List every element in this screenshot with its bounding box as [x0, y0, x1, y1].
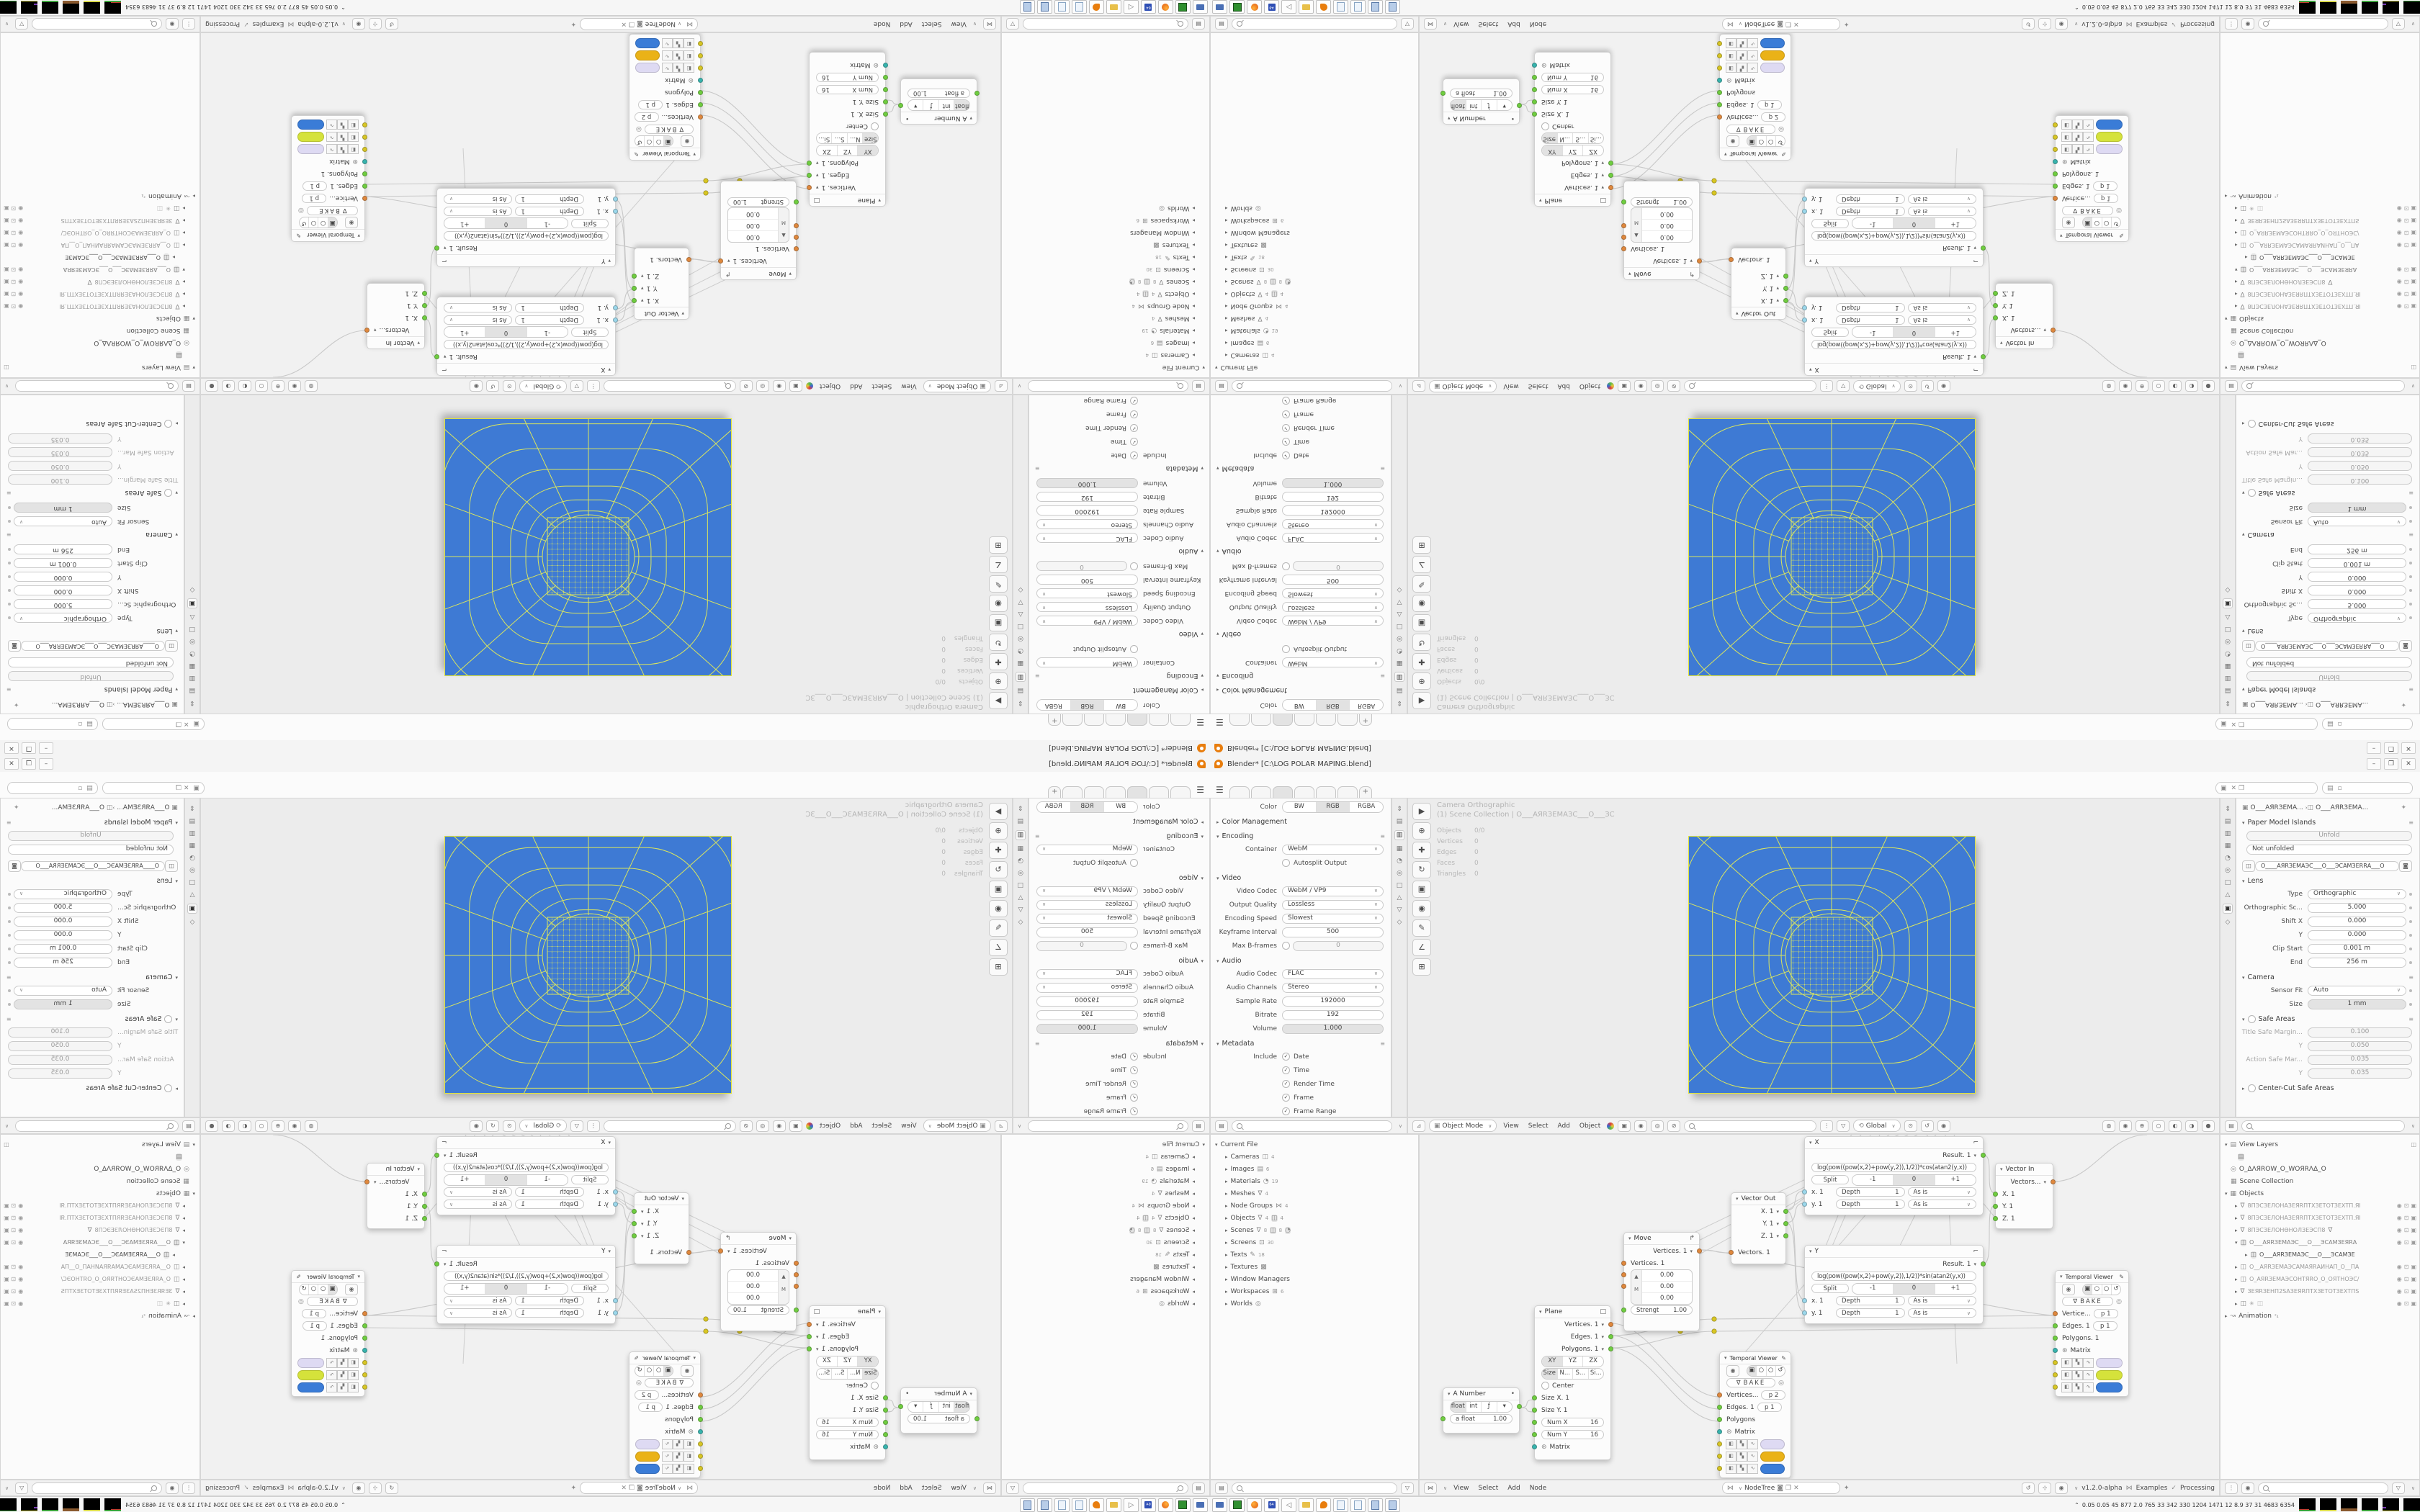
vertices-out-socket[interactable]: [1697, 1248, 1702, 1254]
audio-channels-dropdown[interactable]: Stereo∨: [1036, 520, 1138, 530]
bw-button[interactable]: BW: [1103, 701, 1137, 711]
camera-section[interactable]: Camera: [145, 531, 172, 539]
world-tab-icon[interactable]: ◎: [189, 867, 195, 874]
select-menu[interactable]: Select: [1525, 1122, 1551, 1130]
clip-start-field[interactable]: 0.001 m: [14, 559, 112, 569]
workspace-tab[interactable]: [1251, 714, 1271, 726]
taskbar-calculator-icon[interactable]: [1368, 1498, 1383, 1512]
world-tab-icon[interactable]: ◎: [2225, 638, 2231, 645]
camera-data-tab-icon[interactable]: ▣: [187, 598, 198, 608]
add-menu[interactable]: Add: [1554, 383, 1572, 390]
camera-datablock-icon[interactable]: ◫: [165, 641, 178, 652]
pin-icon[interactable]: ✦: [571, 1485, 577, 1492]
z-in-socket[interactable]: [422, 1216, 427, 1221]
vector-in-socket2[interactable]: [1621, 1284, 1626, 1289]
node-menu[interactable]: Node: [1527, 1485, 1550, 1492]
asis-dropdown[interactable]: As is∨: [444, 1200, 513, 1209]
vertices-out-socket[interactable]: [718, 258, 723, 264]
int-button[interactable]: int: [1466, 101, 1482, 111]
asis-dropdown[interactable]: As is∨: [1908, 1187, 1977, 1197]
snap-icon[interactable]: ↺: [385, 1482, 398, 1494]
preset-icon[interactable]: ≡: [1380, 672, 1391, 679]
pivot-icon[interactable]: ⊙: [503, 381, 516, 392]
spiral-button[interactable]: ↺: [2112, 218, 2120, 228]
y-in-socket[interactable]: [613, 305, 618, 310]
strength-field[interactable]: Strengt1.00: [727, 1305, 789, 1315]
mode-dropdown[interactable]: ▣Object Mode∨: [1429, 1120, 1497, 1132]
object-row[interactable]: ▸∇8ПЭСЗЕЛОНАЗЕЯRПТХЗЕТОТЗЕХТП.ЯI◉⊡▣: [2220, 1200, 2419, 1212]
title-safe-field[interactable]: 0.100: [8, 475, 112, 485]
depth-field[interactable]: Depth1: [516, 303, 585, 312]
vertices-socket[interactable]: [1717, 114, 1722, 120]
autosplit-checkbox[interactable]: [1282, 645, 1290, 653]
node-vector-out[interactable]: ▾Vector Out X. 1▾ Y. 1▾ Z. 1▾ Vectors. 1: [634, 1192, 689, 1264]
tool-tab-icon[interactable]: ▤: [1397, 818, 1403, 825]
y-in-socket[interactable]: [613, 1202, 618, 1207]
search-input[interactable]: [1023, 19, 1188, 30]
spiral-button[interactable]: ↺: [1776, 1366, 1785, 1376]
outliner-item[interactable]: ▸Node Groups⋈4: [1211, 300, 1418, 312]
snap-icon[interactable]: ◉: [773, 1120, 786, 1132]
plus-one-button[interactable]: +1: [444, 1284, 485, 1294]
unfold-button[interactable]: Unfold: [8, 831, 174, 841]
editor-type-icon[interactable]: ⊿: [995, 1120, 1008, 1132]
zero-button[interactable]: 0: [1894, 328, 1935, 338]
search-input[interactable]: [1028, 1120, 1188, 1132]
eye-icon[interactable]: ◉: [1726, 1365, 1739, 1377]
object-row[interactable]: ▸∇8ПЭСЗЕЛОНАЗЕЯRПТХЗЕТОТЗЕХТП.ЯI◉⊡▣: [2220, 300, 2419, 312]
circle-button[interactable]: ○: [654, 1366, 663, 1376]
taskbar-speaker-icon[interactable]: ◁: [1281, 1, 1296, 14]
solid-button[interactable]: ▣: [1747, 1366, 1757, 1376]
x-in-socket[interactable]: [1802, 318, 1807, 323]
bframes-field[interactable]: 0: [1036, 941, 1127, 951]
view-menu[interactable]: View: [1451, 1485, 1471, 1492]
object-row[interactable]: ▸◫O_AЯRЗЕМАЭСОНТЯRО_O_ОЯТНОЭС/◉⊡▣: [1, 227, 200, 239]
camera-datablock-field[interactable]: O____AЯRЗЕМАЭС___O___ЭСАМЗЕRRА___O: [21, 642, 165, 652]
clip-end-field[interactable]: 256 m: [14, 958, 112, 968]
split-button[interactable]: Split: [571, 1284, 609, 1293]
taskbar-calculator-icon[interactable]: [1368, 1, 1383, 14]
scale-tool-icon[interactable]: ▣: [989, 614, 1008, 631]
z-in-socket[interactable]: [1993, 291, 1998, 296]
outliner-item[interactable]: ▸Images▤6: [1211, 337, 1418, 349]
shading-solid-icon[interactable]: ◐: [238, 381, 251, 392]
meta-frame-checkbox[interactable]: ✓: [1282, 410, 1290, 418]
meta-framerange-checkbox[interactable]: ✓: [1130, 397, 1138, 405]
color-management-section[interactable]: Color Management: [1222, 686, 1287, 694]
asis-dropdown[interactable]: As is∨: [1908, 207, 1977, 216]
strength-field[interactable]: Strengt1.00: [1631, 1305, 1693, 1315]
color-socket[interactable]: [2053, 147, 2058, 152]
add-menu[interactable]: Add: [847, 1122, 865, 1130]
y-in-socket[interactable]: [1993, 303, 1998, 308]
node-temporal-viewer-center[interactable]: ▾Temporal Viewer✎ ◉▣○○↺ ∇BAKE◎ Vertices.…: [629, 34, 701, 161]
taskbar-floppy-icon[interactable]: 64: [1264, 1, 1279, 14]
color-socket[interactable]: [362, 1360, 367, 1365]
taskbar-calculator-icon[interactable]: [1020, 1498, 1035, 1512]
edges-socket[interactable]: [1717, 1405, 1722, 1410]
color-swatch-blue[interactable]: [1760, 39, 1785, 49]
outliner-item[interactable]: ▸Window Managers: [1002, 227, 1209, 239]
num-x-socket[interactable]: [1532, 87, 1537, 92]
action-safe-y-field[interactable]: 0.035: [8, 434, 112, 444]
camera-object-row[interactable]: ▾◫O___AЯRЗЕМАЭС___O___ЭСАМЗЕЯRА◉⊡▣: [1, 264, 200, 276]
object-row[interactable]: ▸∇ЗЕЯRЗЕНП2SАЗЕЯRПТХЗЕТОТЗЕХТПS◉⊡▣: [1, 215, 200, 227]
lens-type-dropdown[interactable]: Orthographic∨: [2308, 889, 2406, 899]
polygons-socket[interactable]: [698, 1417, 703, 1422]
matrix-socket[interactable]: [883, 63, 888, 68]
size-y-socket[interactable]: [883, 1408, 888, 1413]
outliner-item[interactable]: ▸Workspaces⊞6: [1211, 1285, 1418, 1297]
formula-field[interactable]: log(pow((pow(x,2)+pow(y,2)),1/2))*cos(at…: [1811, 340, 1976, 349]
node-editor[interactable]: ▾A Number• floatintƒ▾ a float1.00 ▾Plane…: [200, 32, 1001, 378]
vectors-out-socket[interactable]: [2051, 1179, 2056, 1184]
matrix-socket[interactable]: [362, 159, 367, 164]
color-swatch-lavender[interactable]: [635, 1439, 660, 1449]
world-tab-icon[interactable]: ◎: [2225, 867, 2231, 874]
snap-magnet-icon[interactable]: ↺: [1921, 1120, 1934, 1132]
sensor-size-field[interactable]: 1 mm: [14, 503, 112, 513]
workspace-tab-active[interactable]: [1273, 786, 1293, 798]
search-input[interactable]: [1232, 381, 1392, 392]
outliner-root[interactable]: Current File: [1221, 364, 1258, 372]
vertices-socket[interactable]: [2053, 196, 2058, 201]
node-x-formula[interactable]: ▾X⌐ Result. 1▾ log(pow((pow(x,2)+pow(y,2…: [436, 1136, 616, 1215]
result-socket[interactable]: [434, 1153, 439, 1158]
taskbar-folder-icon[interactable]: [1299, 1498, 1314, 1512]
action-safe-y-field[interactable]: 0.035: [2308, 1068, 2412, 1079]
plus-one-button[interactable]: +1: [444, 219, 485, 229]
strength-socket[interactable]: [794, 1308, 799, 1313]
select-menu[interactable]: Select: [1475, 1485, 1501, 1492]
p-field[interactable]: p 1: [302, 181, 327, 191]
container-dropdown[interactable]: WebM∨: [1036, 658, 1138, 668]
pin-icon[interactable]: ✦: [1844, 21, 1850, 28]
vectors-out-socket[interactable]: [364, 1179, 369, 1184]
breadcrumb-object[interactable]: O___AЯRЗЕМА...: [2249, 804, 2305, 811]
paper-model-section[interactable]: Paper Model Islands: [104, 685, 173, 693]
lifebuoy-icon[interactable]: ◎: [1778, 126, 1784, 133]
size-y-socket[interactable]: [1532, 1408, 1537, 1413]
asis-dropdown[interactable]: As is∨: [1908, 1308, 1977, 1318]
workspace-tab[interactable]: [1149, 786, 1169, 798]
zero-button[interactable]: 0: [485, 1175, 526, 1185]
encoding-section[interactable]: Encoding: [1222, 672, 1254, 680]
workspace-tab[interactable]: [1294, 714, 1314, 726]
rotate-tool-icon[interactable]: ↻: [989, 634, 1008, 651]
title-safe-field[interactable]: 0.100: [2308, 475, 2412, 485]
search-input[interactable]: [2258, 1482, 2388, 1494]
outliner-item[interactable]: ▸Textures▩: [1211, 239, 1418, 251]
object-row[interactable]: ▸∇8ПЭСЗЕЛОНѲНОЛЗЕЭСП8∇◉⊡▣: [1, 1224, 200, 1236]
si-button[interactable]: Si...: [817, 134, 832, 144]
driver-button[interactable]: ƒ: [1482, 101, 1497, 111]
unfold-button[interactable]: Unfold: [2246, 831, 2412, 841]
outliner-item[interactable]: ▸Materials◔19: [1002, 325, 1209, 337]
strength-field[interactable]: Strengt1.00: [727, 197, 789, 207]
x-out-socket[interactable]: [1783, 1209, 1788, 1214]
animation-row[interactable]: Animation: [148, 1313, 181, 1320]
filter-icon[interactable]: ◉: [166, 1482, 179, 1494]
rgba-button[interactable]: RGBA: [1037, 802, 1070, 812]
overlay-icon[interactable]: ◉: [2055, 1482, 2068, 1494]
color-swatch-gold[interactable]: [635, 51, 660, 61]
circle-button[interactable]: ○: [1757, 1366, 1766, 1376]
render-icon[interactable]: ◫: [2411, 364, 2416, 371]
outliner-item[interactable]: ▸Node Groups⋈4: [1002, 1200, 1209, 1212]
data-tab-icon[interactable]: ▽: [1397, 598, 1402, 606]
taskbar-display-icon[interactable]: [1193, 1498, 1208, 1512]
node-vector-in[interactable]: ▾Vector In Vectors...▾ X. 1 Y. 1 Z. 1: [367, 283, 425, 349]
title-safe-field[interactable]: 0.100: [8, 1027, 112, 1038]
outliner-item[interactable]: ▸Texts✎18: [1002, 1248, 1209, 1261]
color-socket[interactable]: [1717, 53, 1722, 58]
preset-icon[interactable]: ≡: [1029, 833, 1040, 840]
select-mode-icon[interactable]: ▣: [1618, 381, 1631, 392]
viewport-search-input[interactable]: [604, 381, 736, 392]
move-vector-field[interactable]: ▲M0.000.000.00: [1631, 208, 1693, 243]
window-titlebar[interactable]: Blender* [C:\LOG POLAR MAPING.blend] – ❐…: [0, 756, 1210, 773]
vector-in-socket[interactable]: [1621, 1272, 1626, 1277]
view-menu[interactable]: View: [949, 1485, 969, 1492]
eye-icon[interactable]: ◉: [2062, 217, 2075, 229]
outliner-item[interactable]: ▸Cameras◫4: [1211, 1151, 1418, 1163]
scene-tab-icon[interactable]: ◔: [1397, 647, 1402, 654]
objects-collection-row[interactable]: Objects: [2239, 315, 2264, 323]
keyframe-interval-field[interactable]: 500: [1282, 927, 1384, 937]
s-button[interactable]: S...: [1573, 134, 1589, 144]
safe-areas-section[interactable]: Safe Areas: [2259, 489, 2295, 497]
fake-user-shield-icon[interactable]: ◙: [8, 641, 21, 652]
color-swatch-lavender[interactable]: [635, 63, 660, 73]
meta-rendertime-checkbox[interactable]: ✓: [1282, 424, 1290, 432]
a-float-field[interactable]: a float1.00: [1450, 89, 1512, 98]
depth-field[interactable]: Depth1: [1836, 1187, 1905, 1197]
scene-tab-icon[interactable]: ◔: [1018, 858, 1023, 865]
float-button[interactable]: float: [1451, 1402, 1466, 1412]
minus-one-button[interactable]: -1: [526, 219, 568, 229]
asis-dropdown[interactable]: As is∨: [444, 315, 513, 325]
meta-framerange-checkbox[interactable]: ✓: [1282, 397, 1290, 405]
node-menu[interactable]: Node: [1527, 21, 1550, 28]
driver-button[interactable]: ƒ: [923, 1402, 939, 1412]
sample-rate-field[interactable]: 192000: [1036, 506, 1138, 516]
x-in-socket[interactable]: [1993, 1192, 1998, 1197]
pivot-icon[interactable]: ⊙: [1904, 381, 1917, 392]
annotate-tool-icon[interactable]: ✎: [989, 919, 1008, 937]
snap-icon[interactable]: ◉: [773, 381, 786, 392]
outliner-item[interactable]: ▸Meshes∇4: [1211, 1187, 1418, 1200]
edges-out-socket[interactable]: [1608, 173, 1613, 178]
vectors-out-socket[interactable]: [2051, 328, 2056, 333]
lifebuoy-icon[interactable]: ◎: [1778, 1380, 1784, 1387]
physics-tab-icon[interactable]: ◇: [2226, 919, 2231, 926]
cursor-tool-icon[interactable]: ⊕: [1412, 672, 1431, 690]
vertices-in-socket[interactable]: [794, 1261, 799, 1266]
polygons-out-socket[interactable]: [807, 1346, 812, 1351]
center-cut-checkbox[interactable]: [164, 1084, 172, 1092]
search-input[interactable]: [2258, 19, 2388, 30]
p-field[interactable]: p 1: [1757, 100, 1782, 109]
lifebuoy-icon[interactable]: ◎: [2116, 207, 2122, 215]
audio-channels-dropdown[interactable]: Stereo∨: [1282, 983, 1384, 993]
funnel-icon[interactable]: ▽: [2392, 19, 2405, 30]
scene-selector[interactable]: ▣✕❐: [102, 718, 205, 730]
search-input[interactable]: [15, 1120, 179, 1132]
output-tab-icon[interactable]: ▥: [1016, 830, 1026, 840]
center-cut-section[interactable]: Center-Cut Safe Areas: [86, 420, 161, 428]
solid-button[interactable]: ▣: [328, 1284, 337, 1295]
p-field[interactable]: p 1: [2093, 1321, 2117, 1331]
shading-wireframe-icon[interactable]: ○: [255, 1120, 268, 1132]
input-socket[interactable]: [1440, 1416, 1446, 1421]
depth-field[interactable]: Depth1: [1836, 194, 1905, 204]
breadcrumb-data[interactable]: O___AЯRЗЕМА...: [50, 701, 107, 708]
strength-socket[interactable]: [1621, 199, 1626, 204]
annotate-tool-icon[interactable]: ✎: [989, 575, 1008, 593]
filter-list-icon[interactable]: ⋮: [587, 381, 600, 392]
size-x-socket[interactable]: [883, 1395, 888, 1400]
node-tree-selector[interactable]: ⋈∨NodeTree◙❐✕: [580, 18, 698, 30]
solid-button[interactable]: ▣: [328, 218, 337, 228]
meta-rendertime-checkbox[interactable]: ✓: [1130, 424, 1138, 432]
shading-material-icon[interactable]: ◑: [2185, 381, 2198, 392]
video-codec-dropdown[interactable]: WebM / VP9∨: [1282, 886, 1384, 896]
node-vector-out[interactable]: ▾Vector Out X. 1▾ Y. 1▾ Z. 1▾ Vectors. 1: [1731, 1192, 1786, 1264]
vectors-in-socket[interactable]: [686, 257, 691, 262]
output-quality-dropdown[interactable]: Lossless∨: [1282, 900, 1384, 910]
node-x-formula[interactable]: ▾X⌐ Result. 1▾ log(pow((pow(x,2)+pow(y,2…: [1804, 1136, 1984, 1215]
shading-solid-icon[interactable]: ◐: [2169, 1120, 2182, 1132]
zero-button[interactable]: 0: [485, 1284, 526, 1294]
circle-button[interactable]: ○: [2092, 218, 2102, 228]
s-button[interactable]: S...: [1573, 1369, 1589, 1379]
vectors-in-socket[interactable]: [1729, 1250, 1734, 1255]
animation-row[interactable]: Animation: [2238, 193, 2272, 200]
taskbar-speaker-icon[interactable]: ◁: [1124, 1498, 1139, 1512]
action-safe-y-field[interactable]: 0.035: [8, 1068, 112, 1079]
num-y-field[interactable]: Num Y16: [816, 73, 879, 82]
world-tab-icon[interactable]: ◎: [1018, 635, 1023, 642]
lifebuoy-icon[interactable]: ◎: [636, 1380, 642, 1387]
taskbar-blender-icon[interactable]: [1089, 1, 1104, 14]
y-in-socket[interactable]: [1993, 1204, 1998, 1209]
examples-menu[interactable]: Examples: [2136, 21, 2168, 28]
encoding-section[interactable]: Encoding: [1167, 672, 1198, 680]
asis-dropdown[interactable]: As is∨: [444, 303, 513, 312]
formula-field[interactable]: log(pow((pow(x,2)+pow(y,2)),1/2))*sin(at…: [1811, 231, 1976, 240]
x-in-socket[interactable]: [613, 209, 618, 214]
filter-list-icon[interactable]: ⋮: [1820, 381, 1833, 392]
video-section[interactable]: Video: [1222, 874, 1242, 882]
display-mode-icon[interactable]: ⋮: [2225, 19, 2238, 30]
edges-out-socket[interactable]: [807, 1334, 812, 1339]
node-vector-in[interactable]: ▾Vector In Vectors...▾ X. 1 Y. 1 Z. 1: [367, 1163, 425, 1229]
shift-y-field[interactable]: 0.000: [14, 572, 112, 582]
object-row[interactable]: ▸∇8ПЭСЗЕЛОНѲНОЛЗЕЭСП8∇◉⊡▣: [2220, 1224, 2419, 1236]
overlays-icon[interactable]: ◉: [288, 1120, 301, 1132]
pin-icon[interactable]: ✦: [1844, 1485, 1850, 1492]
viewport-3d[interactable]: ▶ ⊕ ✚ ↻ ▣ ◉ ✎ ∠ ⊞ Camera Orthographic (1…: [1407, 798, 2220, 1117]
workspace-tab[interactable]: [1170, 714, 1191, 726]
camera-datablock-icon[interactable]: ◫: [2242, 860, 2255, 872]
measure-tool-icon[interactable]: ∠: [1412, 556, 1431, 573]
circle2-button[interactable]: ○: [644, 1366, 653, 1376]
clip-start-field[interactable]: 0.001 m: [14, 944, 112, 954]
color-socket[interactable]: [2053, 122, 2058, 127]
lock-icon[interactable]: ⊘: [740, 381, 753, 392]
polygons-socket[interactable]: [362, 171, 367, 176]
outliner-item[interactable]: ▸Worlds◎: [1211, 202, 1418, 215]
object-tab-icon[interactable]: □: [1018, 623, 1024, 630]
color-socket[interactable]: [362, 1372, 367, 1377]
taskbar-gpu-icon[interactable]: [1229, 1498, 1245, 1512]
strength-socket[interactable]: [1621, 1308, 1626, 1313]
asis-dropdown[interactable]: As is∨: [444, 1308, 513, 1318]
vertices-socket[interactable]: [362, 196, 367, 201]
display-mode-icon[interactable]: ⋮: [182, 19, 195, 30]
vectors-in-socket[interactable]: [1729, 257, 1734, 262]
funnel-icon[interactable]: ▽: [15, 19, 28, 30]
taskbar-gpu-icon[interactable]: [1175, 1498, 1191, 1512]
meta-frame-checkbox[interactable]: ✓: [1130, 410, 1138, 418]
color-socket[interactable]: [698, 41, 703, 46]
vector-in-socket[interactable]: [794, 1272, 799, 1277]
vector-in-socket2[interactable]: [794, 1284, 799, 1289]
video-section[interactable]: Video: [1179, 630, 1198, 638]
snap-target-icon[interactable]: ⊹: [369, 19, 382, 30]
object-row[interactable]: ▸∇8ПЭСЗЕЛОНАЗЕЯRПТХЗЕТОТЗЕХТП.ЯI◉⊡▣: [2220, 1212, 2419, 1224]
keyframe-interval-field[interactable]: 500: [1282, 575, 1384, 585]
camera-data-row[interactable]: ▸◫O___AЯRЗЕМАЭС___O___ЭСАМЗЕ: [2220, 1248, 2419, 1261]
node-temporal-viewer-center[interactable]: ▾Temporal Viewer✎ ◉▣○○↺ ∇BAKE◎ Vertices.…: [1719, 1351, 1791, 1478]
edges-socket[interactable]: [698, 1405, 703, 1410]
view-menu[interactable]: View: [898, 1122, 919, 1130]
bw-button[interactable]: BW: [1103, 802, 1137, 812]
mode-dropdown[interactable]: ▣Object Mode∨: [1429, 380, 1497, 392]
node-temporal-viewer-right[interactable]: ▾Temporal Viewer✎ ◉▣○○↺ ∇BAKE◎ Vertice..…: [2055, 1270, 2129, 1397]
scene-tab-icon[interactable]: ◔: [189, 650, 195, 657]
hamburger-menu-icon[interactable]: ☰: [1216, 717, 1224, 727]
color-socket[interactable]: [1717, 1441, 1722, 1446]
outliner-item[interactable]: ▸Materials◔19: [1211, 325, 1418, 337]
object-row[interactable]: ▸∇8ПЭСЗЕЛОНѲНОЛЗЕЭСП8∇◉⊡▣: [2220, 276, 2419, 288]
si-button[interactable]: Si...: [1589, 1369, 1604, 1379]
color-socket[interactable]: [2053, 1385, 2058, 1390]
taskbar-notepad-icon[interactable]: [1350, 1, 1366, 14]
add-cube-tool-icon[interactable]: ⊞: [1412, 958, 1431, 976]
lock-icon[interactable]: ⊘: [1667, 1120, 1680, 1132]
color-swatch-blue[interactable]: [1760, 1464, 1785, 1474]
asis-dropdown[interactable]: As is∨: [444, 207, 513, 216]
circle2-button[interactable]: ○: [2102, 1284, 2112, 1295]
matrix-socket[interactable]: [1717, 78, 1722, 83]
tool-tab-icon[interactable]: ▤: [2225, 818, 2231, 825]
render-icon[interactable]: ◫: [4, 364, 9, 371]
shift-y-field[interactable]: 0.000: [2308, 930, 2406, 940]
sensor-size-field[interactable]: 1 mm: [2308, 999, 2406, 1009]
editor-type-icon[interactable]: ⋈: [983, 1482, 996, 1494]
funnel-icon[interactable]: ▽: [15, 1482, 28, 1494]
object-row[interactable]: ▸◫✳◫◉⊡▣: [2220, 202, 2419, 215]
outliner-item[interactable]: ▸Meshes∇4: [1002, 312, 1209, 325]
add-menu[interactable]: Add: [1554, 1122, 1572, 1130]
rotate-tool-icon[interactable]: ↻: [1412, 634, 1431, 651]
camera-object-row[interactable]: ▾◫O___AЯRЗЕМАЭС___O___ЭСАМЗЕЯRА◉⊡▣: [1, 1236, 200, 1248]
eye-icon[interactable]: ◉: [681, 136, 694, 148]
safe-areas-section[interactable]: Safe Areas: [2259, 1015, 2295, 1023]
